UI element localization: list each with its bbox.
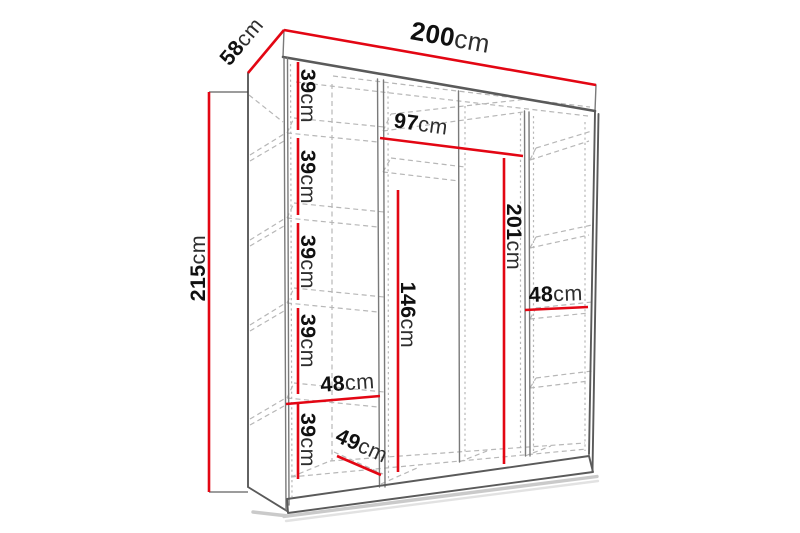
dimension-label: 49cm [332,424,391,468]
dimension-width-200: 200cm [284,15,596,85]
diagram-canvas: 200cm 58cm 215cm 39cm 39cm 39cm 39cm 39c… [0,0,800,533]
dimension-line [380,138,523,156]
dimension-label: 201cm [502,204,526,271]
dimension-hanging-height-146: 146cm [396,190,420,472]
dimension-label: 48cm [320,369,376,397]
dimension-label: 146cm [396,282,420,349]
divider-1 [378,79,386,487]
dimension-middle-height-201: 201cm [502,158,526,464]
dimension-label: 97cm [392,108,449,139]
dimension-label: 48cm [528,281,583,307]
dimension-floor-depth-49: 49cm [332,424,391,475]
left-side-panel-hidden [249,95,284,425]
dimension-line [525,307,588,310]
top-underside-hidden [296,76,590,116]
dimension-middle-width-97: 97cm [380,108,523,156]
dimension-label: 39cm [296,150,320,204]
right-side-edges [589,112,599,471]
right-column-shelves-hidden [530,131,592,388]
dimension-label: 215cm [186,235,210,302]
dimension-label: 39cm [296,69,320,123]
floor-shadow-soft [286,481,598,521]
dimension-label: 58cm [215,13,268,70]
dimension-height-215: 215cm [186,92,248,492]
extension-ticks [209,92,248,492]
dimension-right-width-48: 48cm [525,281,588,310]
dimension-label: 39cm [296,235,320,289]
dimension-label: 39cm [296,314,320,368]
edge-top-front [283,57,595,111]
dimension-depth-58: 58cm [215,13,284,73]
dimension-shelf-gaps-39: 39cm 39cm 39cm 39cm 39cm [296,62,320,479]
wardrobe-dimension-diagram: 200cm 58cm 215cm 39cm 39cm 39cm 39cm 39c… [0,0,800,533]
left-side-panel-edges [248,73,287,511]
left-front-verticals [284,58,289,510]
dimension-label: 39cm [296,413,320,467]
dimension-label: 200cm [408,15,492,58]
